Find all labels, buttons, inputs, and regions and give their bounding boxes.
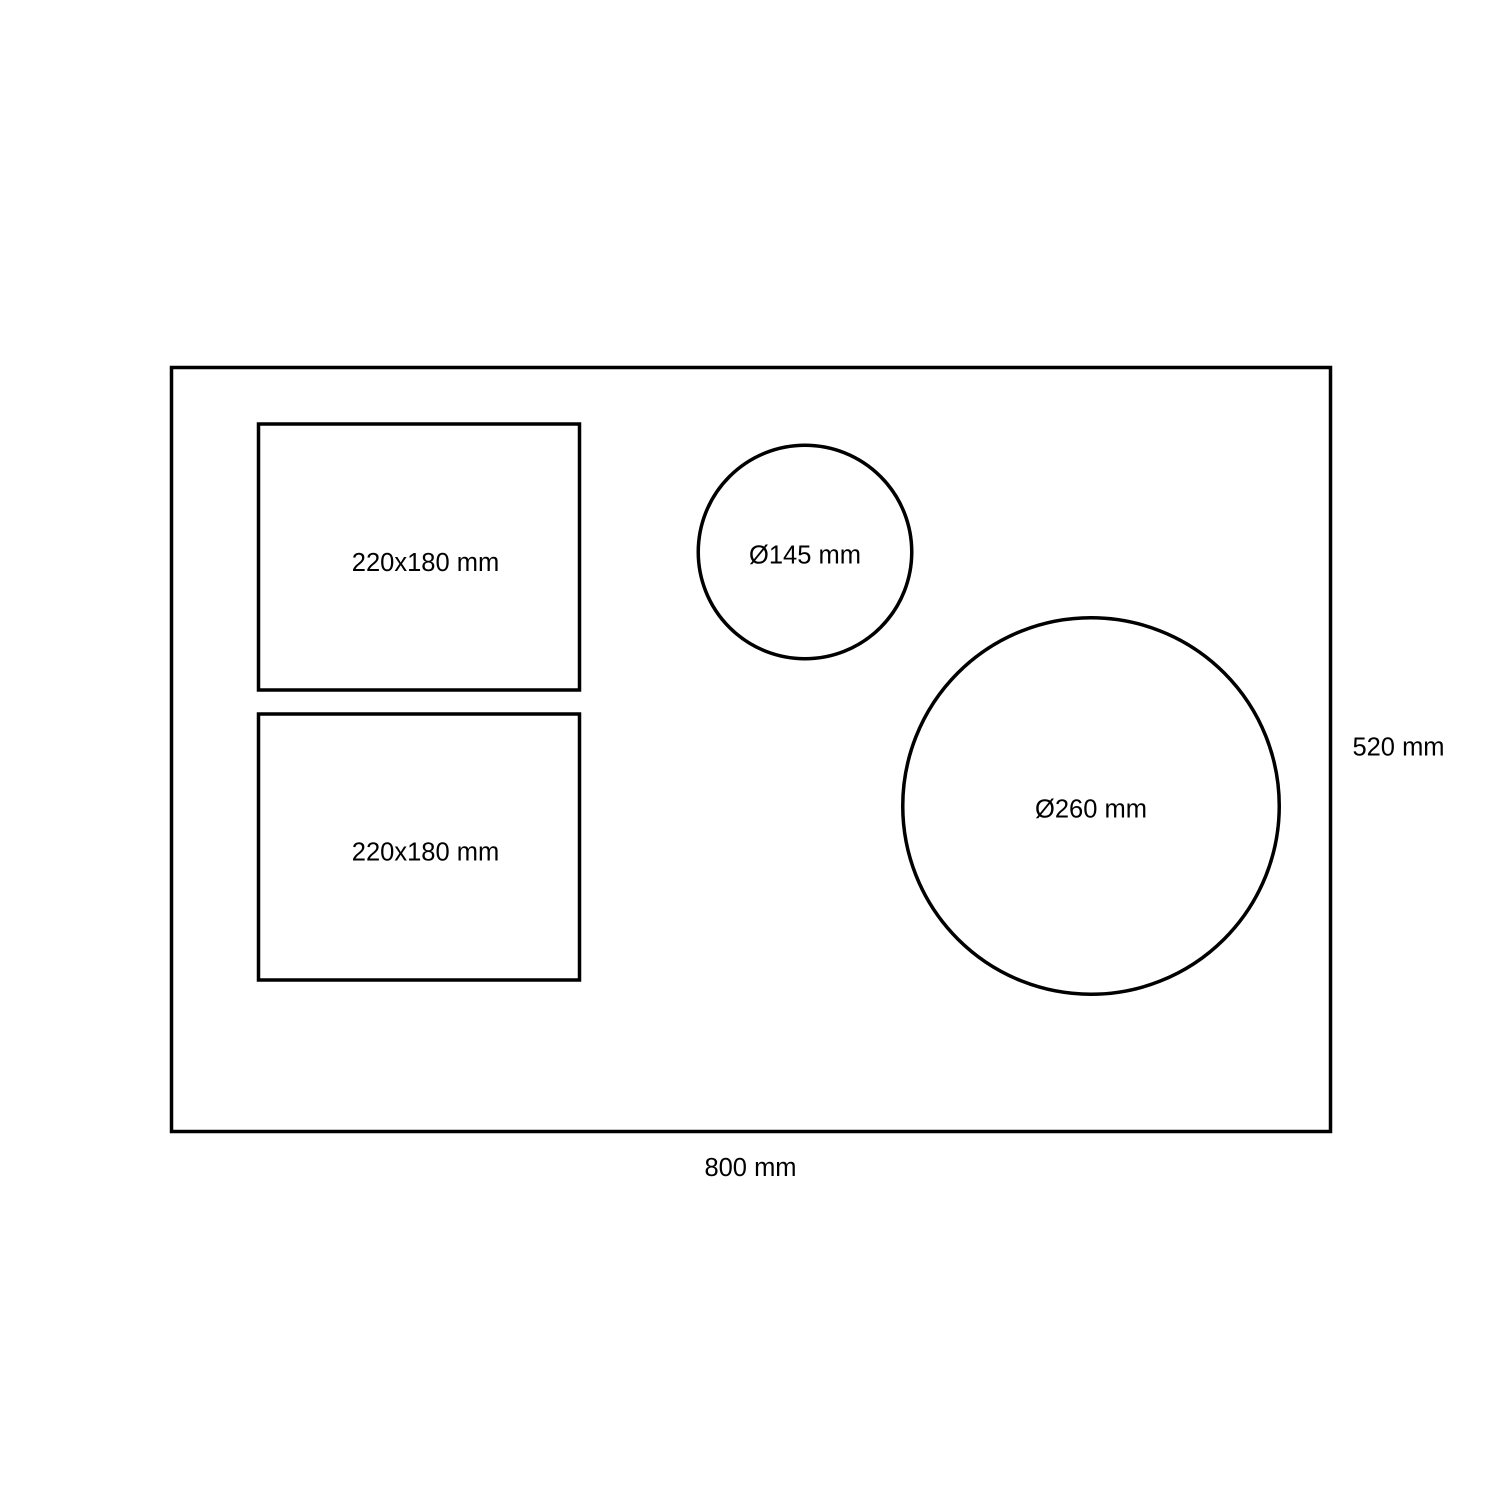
svg-text:Ø145 mm: Ø145 mm bbox=[749, 542, 861, 570]
svg-text:220x180 mm: 220x180 mm bbox=[352, 549, 499, 577]
svg-text:520 mm: 520 mm bbox=[1352, 734, 1444, 762]
svg-text:220x180 mm: 220x180 mm bbox=[352, 838, 499, 866]
svg-text:Ø260 mm: Ø260 mm bbox=[1035, 796, 1147, 824]
svg-text:800 mm: 800 mm bbox=[704, 1154, 796, 1182]
